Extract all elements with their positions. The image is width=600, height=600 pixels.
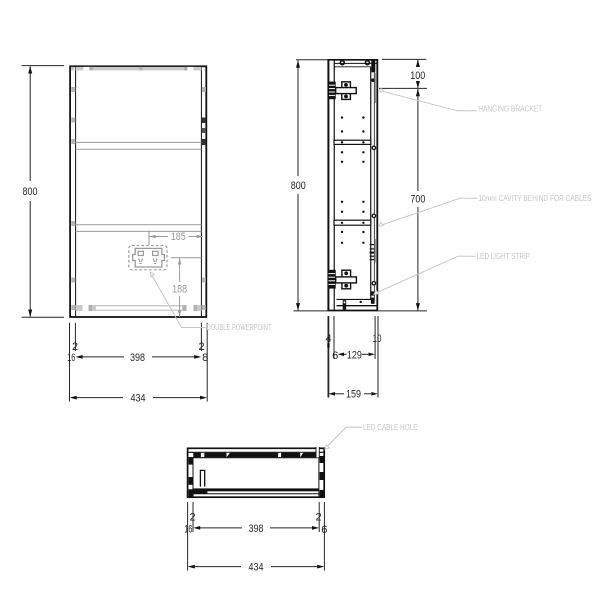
svg-text:DOUBLE POWERPOINT: DOUBLE POWERPOINT: [207, 323, 272, 332]
svg-text:800: 800: [23, 186, 38, 198]
svg-text:LED CABLE HOLE: LED CABLE HOLE: [363, 423, 418, 432]
svg-text:10: 10: [373, 333, 382, 345]
svg-text:10mm CAVITY BEHIND FOR CABLES: 10mm CAVITY BEHIND FOR CABLES: [479, 194, 592, 203]
svg-text:159: 159: [346, 389, 361, 401]
svg-text:434: 434: [249, 561, 264, 573]
svg-text:398: 398: [249, 523, 264, 535]
svg-text:HANGING BRACKET: HANGING BRACKET: [478, 105, 542, 114]
svg-text:398: 398: [130, 352, 145, 364]
svg-text:185: 185: [171, 231, 186, 243]
svg-text:16: 16: [184, 523, 192, 535]
svg-text:LED LIGHT STRIP: LED LIGHT STRIP: [477, 252, 531, 261]
svg-text:8: 8: [202, 352, 208, 364]
svg-text:188: 188: [172, 284, 187, 296]
svg-text:4: 4: [326, 333, 332, 345]
svg-text:800: 800: [291, 180, 306, 192]
svg-text:100: 100: [410, 70, 425, 82]
svg-text:700: 700: [410, 194, 425, 206]
svg-text:2: 2: [316, 512, 322, 524]
svg-text:129: 129: [347, 350, 362, 362]
svg-text:2: 2: [190, 512, 196, 524]
svg-text:434: 434: [131, 392, 146, 404]
svg-text:16: 16: [67, 352, 75, 364]
svg-text:6: 6: [332, 350, 338, 362]
svg-text:6: 6: [321, 524, 327, 536]
